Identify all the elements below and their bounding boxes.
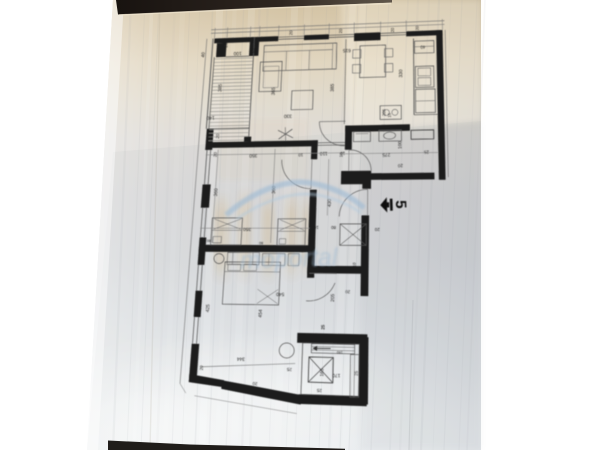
- svg-text:350: 350: [249, 152, 257, 158]
- svg-text:385: 385: [330, 83, 336, 91]
- svg-text:20: 20: [223, 42, 228, 48]
- svg-text:425: 425: [205, 304, 212, 313]
- svg-text:15: 15: [387, 112, 392, 117]
- svg-text:140: 140: [206, 114, 214, 120]
- svg-text:80: 80: [331, 225, 336, 230]
- svg-text:40: 40: [200, 52, 205, 58]
- svg-text:454: 454: [258, 309, 264, 318]
- svg-text:20: 20: [397, 163, 403, 168]
- svg-text:20: 20: [250, 47, 255, 53]
- svg-text:170: 170: [332, 372, 340, 378]
- svg-text:20: 20: [215, 133, 220, 139]
- svg-text:100: 100: [233, 50, 242, 56]
- svg-text:205: 205: [330, 293, 336, 301]
- svg-text:615: 615: [342, 47, 351, 53]
- svg-text:25: 25: [354, 370, 359, 376]
- svg-text:10: 10: [339, 152, 344, 157]
- svg-text:20: 20: [390, 27, 395, 32]
- svg-text:330: 330: [284, 113, 292, 119]
- svg-text:moportal: moportal: [240, 243, 340, 274]
- svg-text:330: 330: [398, 69, 404, 77]
- svg-text:10: 10: [309, 226, 314, 231]
- svg-text:25: 25: [286, 367, 292, 372]
- svg-text:5: 5: [392, 200, 409, 209]
- svg-text:40: 40: [420, 45, 426, 50]
- svg-text:360: 360: [213, 188, 220, 197]
- svg-text:275: 275: [382, 151, 390, 157]
- svg-text:20: 20: [374, 227, 379, 232]
- svg-text:10: 10: [298, 152, 304, 157]
- svg-text:20: 20: [415, 25, 420, 30]
- svg-text:20: 20: [252, 381, 258, 386]
- svg-text:10: 10: [352, 262, 357, 267]
- svg-text:344: 344: [236, 355, 244, 361]
- svg-text:25: 25: [320, 324, 325, 330]
- svg-text:25: 25: [423, 150, 429, 155]
- svg-text:20: 20: [345, 289, 351, 294]
- svg-text:20: 20: [338, 28, 343, 33]
- svg-text:110: 110: [320, 150, 328, 156]
- svg-text:20: 20: [199, 365, 204, 371]
- svg-text:80: 80: [207, 239, 211, 243]
- svg-text:20: 20: [288, 30, 293, 36]
- svg-text:180: 180: [337, 350, 343, 354]
- svg-text:25: 25: [316, 388, 322, 393]
- svg-text:540: 540: [276, 291, 284, 297]
- svg-text:80: 80: [259, 241, 263, 245]
- svg-text:365: 365: [271, 87, 277, 96]
- svg-text:385: 385: [217, 83, 224, 92]
- svg-text:20: 20: [199, 236, 204, 242]
- svg-text:205: 205: [381, 108, 386, 116]
- svg-text:350: 350: [243, 226, 251, 232]
- svg-text:20: 20: [213, 151, 218, 157]
- svg-text:165: 165: [319, 368, 325, 376]
- svg-text:10: 10: [313, 225, 318, 230]
- svg-text:100: 100: [397, 141, 402, 149]
